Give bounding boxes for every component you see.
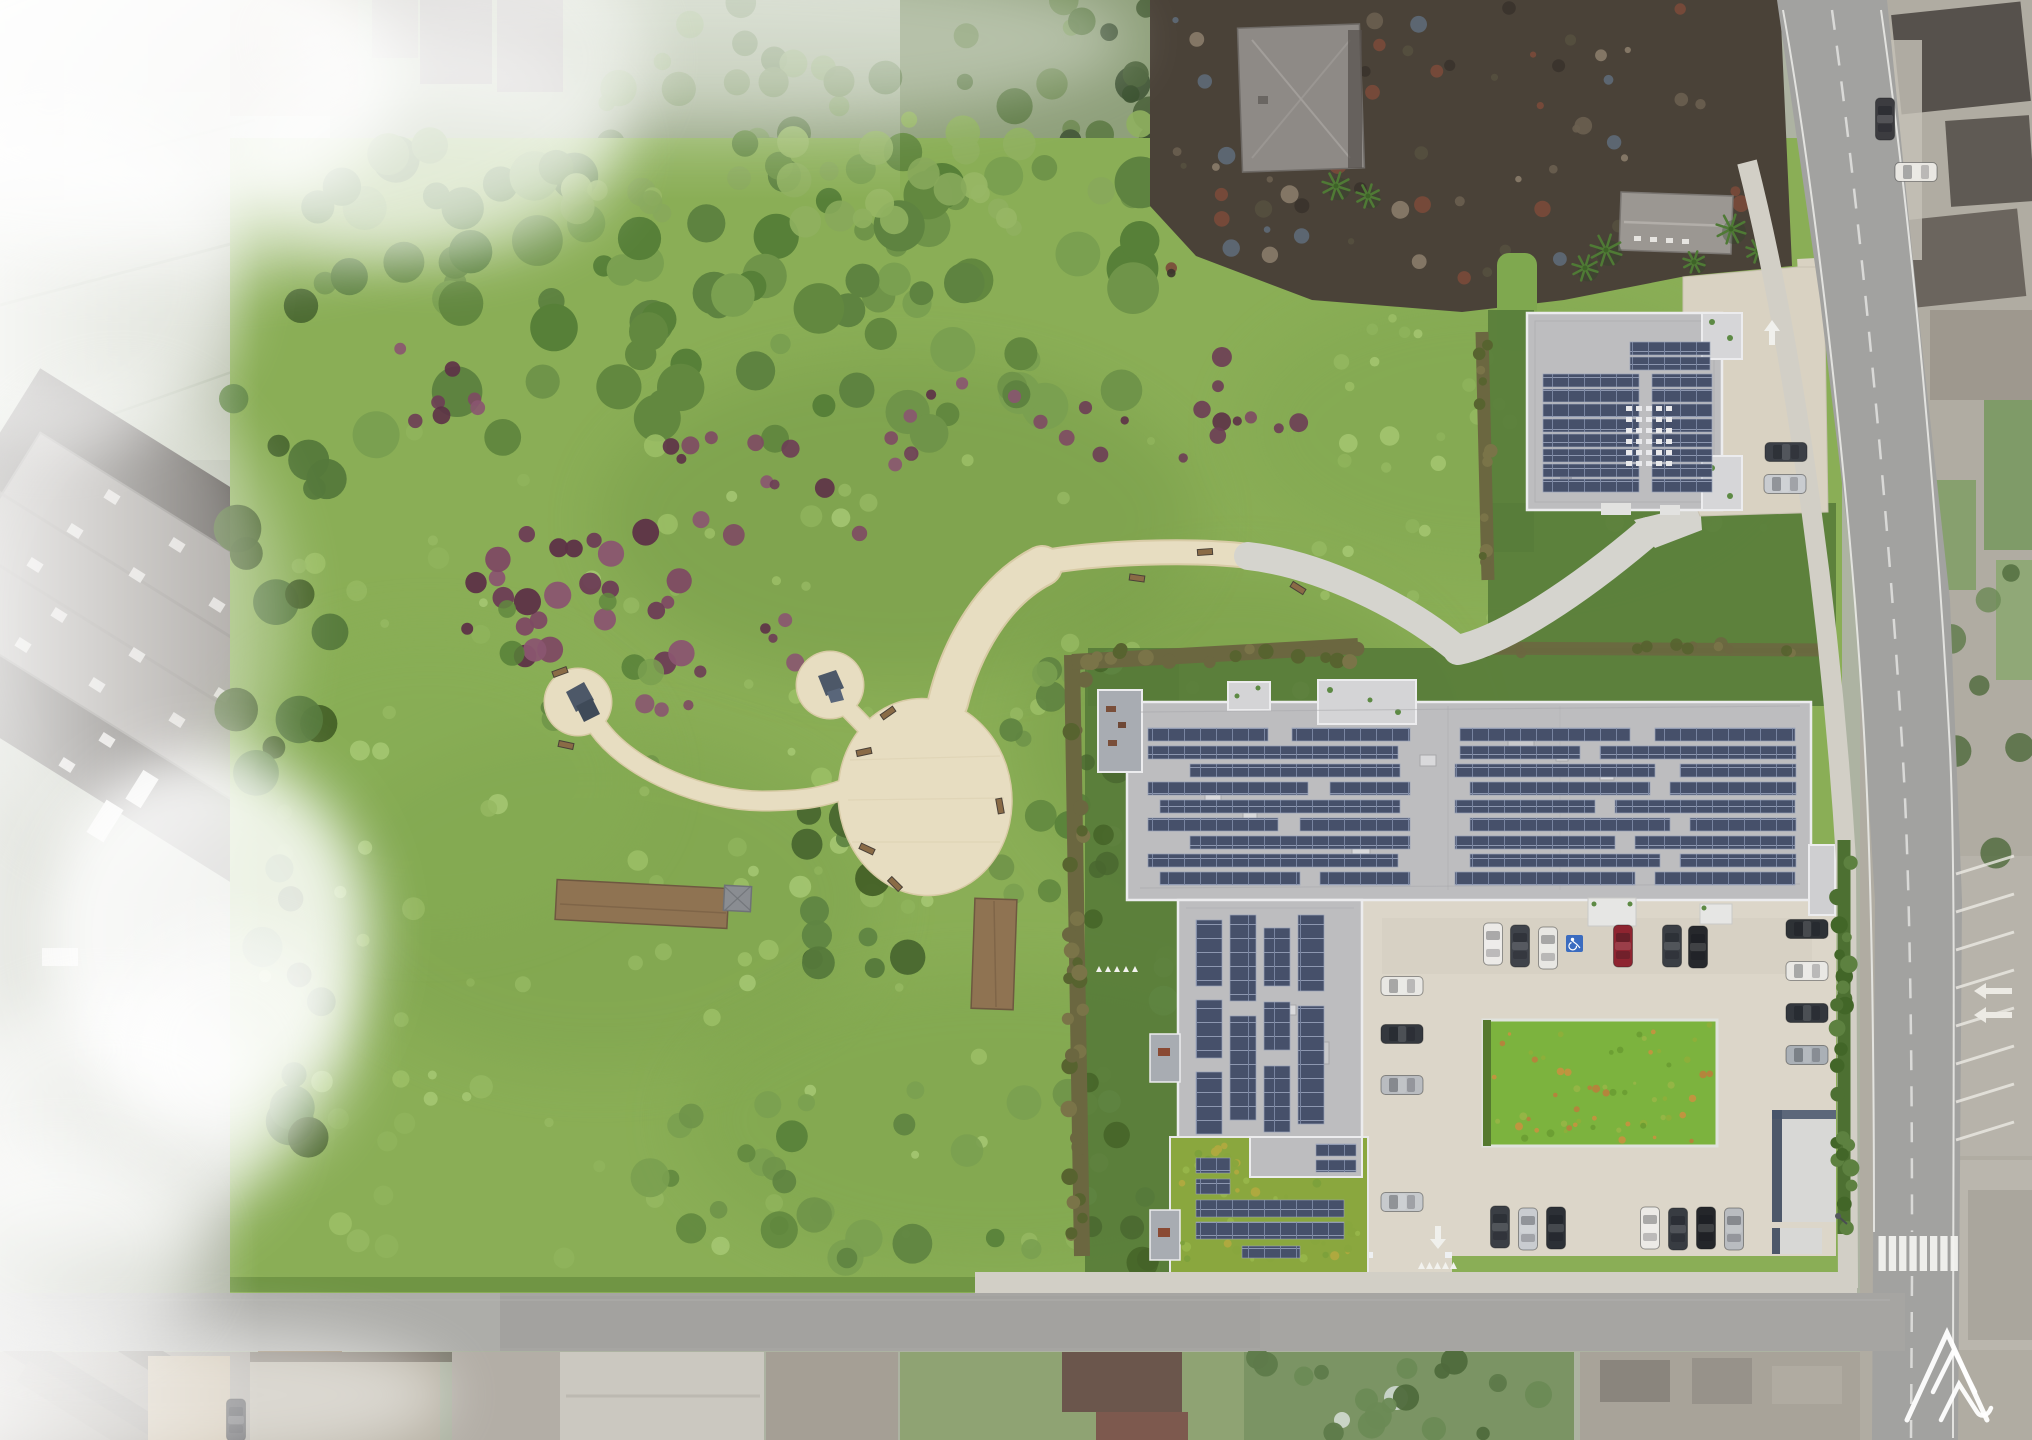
site-plan-canvas [0,0,2032,1440]
aerial-site-plan [0,0,2032,1440]
